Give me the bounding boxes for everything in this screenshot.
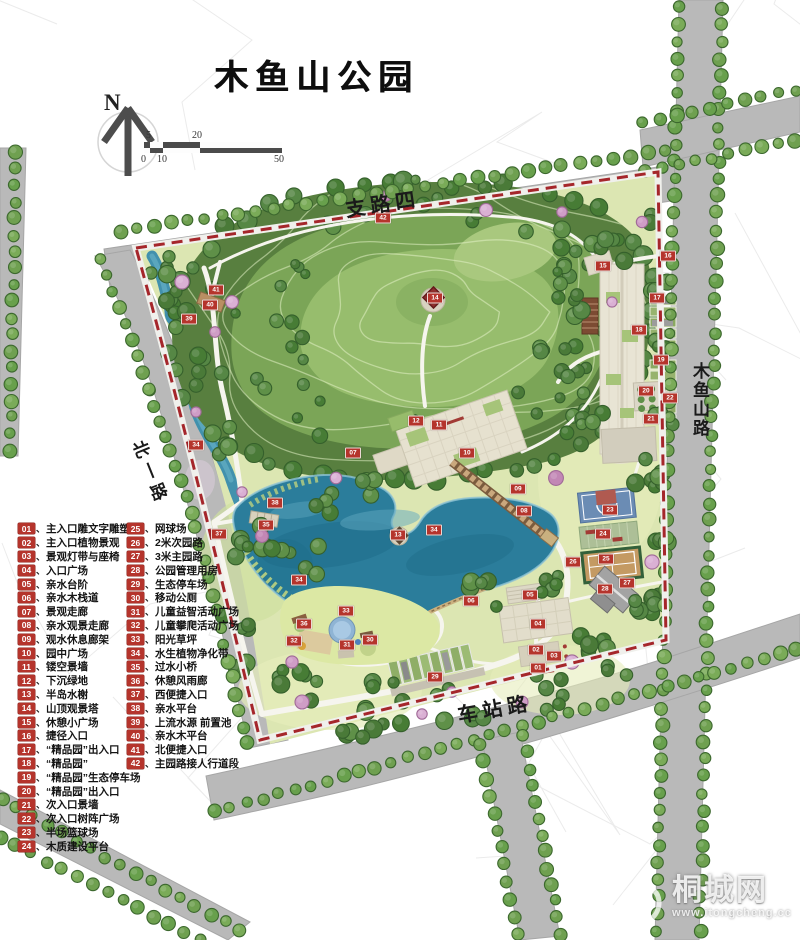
- legend-separator: 、: [145, 729, 154, 742]
- legend-item-number: 27: [127, 551, 144, 562]
- legend-item: 01、主入口雕文字雕塑: [18, 522, 141, 536]
- legend-separator: 、: [36, 633, 45, 646]
- legend-separator: 、: [36, 743, 45, 756]
- legend-item-label: 亲水木平台: [155, 728, 208, 743]
- legend-separator: 、: [145, 550, 154, 563]
- legend-item: 14、山顶观景塔: [18, 701, 141, 715]
- legend-separator: 、: [36, 619, 45, 632]
- legend-column-2: 25、网球场26、2米次园路27、3米主园路28、公园管理用房29、生态停车场3…: [127, 522, 239, 770]
- legend-item-number: 35: [127, 661, 144, 672]
- legend-item-label: 过水小桥: [155, 659, 197, 674]
- legend-item: 05、亲水台阶: [18, 577, 141, 591]
- legend-separator: 、: [145, 688, 154, 701]
- legend-item-label: 休憩风雨廊: [155, 673, 208, 688]
- legend-separator: 、: [36, 578, 45, 591]
- legend-item-number: 22: [18, 813, 35, 824]
- legend-item-label: 景观灯带与座椅: [46, 549, 120, 564]
- legend-separator: 、: [36, 550, 45, 563]
- legend-item-label: “精品园”: [46, 756, 88, 771]
- legend-separator: 、: [145, 578, 154, 591]
- legend-item-label: “精品园”生态停车场: [46, 770, 141, 785]
- legend-item-number: 23: [18, 827, 35, 838]
- legend-item-number: 19: [18, 772, 35, 783]
- legend-item: 26、2米次园路: [127, 536, 239, 550]
- legend-item: 25、网球场: [127, 522, 239, 536]
- legend-item-number: 34: [127, 648, 144, 659]
- legend-item: 29、生态停车场: [127, 577, 239, 591]
- scale-label: 0: [141, 154, 146, 165]
- legend-item-label: “精品园”出入口: [46, 784, 120, 799]
- legend-item: 37、西便捷入口: [127, 688, 239, 702]
- legend-separator: 、: [36, 757, 45, 770]
- legend-item: 08、亲水观景走廊: [18, 619, 141, 633]
- legend-separator: 、: [145, 674, 154, 687]
- legend-item-label: 镂空景墙: [46, 659, 88, 674]
- legend-item-number: 08: [18, 620, 35, 631]
- legend-separator: 、: [36, 605, 45, 618]
- legend-item-label: 下沉绿地: [46, 673, 88, 688]
- legend-item: 12、下沉绿地: [18, 674, 141, 688]
- legend-item-label: 主入口植物景观: [46, 535, 120, 550]
- legend-separator: 、: [145, 536, 154, 549]
- legend-item-number: 15: [18, 717, 35, 728]
- legend-item: 13、半岛水榭: [18, 688, 141, 702]
- legend-separator: 、: [145, 619, 154, 632]
- legend-item-label: 主入口雕文字雕塑: [46, 521, 130, 536]
- legend-item-number: 17: [18, 744, 35, 755]
- legend-item: 19、“精品园”生态停车场: [18, 770, 141, 784]
- legend-item-number: 40: [127, 730, 144, 741]
- legend-item-label: 捷径入口: [46, 728, 88, 743]
- legend-item-number: 16: [18, 730, 35, 741]
- legend-item-number: 41: [127, 744, 144, 755]
- legend-item: 21、次入口景墙: [18, 798, 141, 812]
- legend-item: 07、景观走廊: [18, 605, 141, 619]
- legend-item-label: 观水休息廊架: [46, 632, 109, 647]
- scale-label: 50: [274, 154, 284, 165]
- legend-item-number: 36: [127, 675, 144, 686]
- legend-item: 22、次入口树阵广场: [18, 812, 141, 826]
- legend-item-number: 39: [127, 717, 144, 728]
- legend-item: 27、3米主园路: [127, 550, 239, 564]
- legend-item: 35、过水小桥: [127, 660, 239, 674]
- legend-item: 10、园中广场: [18, 646, 141, 660]
- scale-label: 20: [192, 130, 202, 141]
- legend-separator: 、: [36, 812, 45, 825]
- legend-item: 28、公园管理用房: [127, 563, 239, 577]
- legend-separator: 、: [36, 674, 45, 687]
- legend-item: 04、入口广场: [18, 563, 141, 577]
- legend-item-number: 32: [127, 620, 144, 631]
- legend-item-label: 亲水木栈道: [46, 590, 99, 605]
- legend-item-label: 亲水观景走廊: [46, 618, 109, 633]
- legend-item: 11、镂空景墙: [18, 660, 141, 674]
- legend-item-label: 公园管理用房: [155, 563, 218, 578]
- legend-item-number: 21: [18, 799, 35, 810]
- legend-separator: 、: [145, 605, 154, 618]
- legend-separator: 、: [36, 564, 45, 577]
- legend-separator: 、: [145, 757, 154, 770]
- legend-item-label: 半场篮球场: [46, 825, 99, 840]
- legend-item-number: 06: [18, 592, 35, 603]
- legend-separator: 、: [36, 798, 45, 811]
- legend-item-label: 生态停车场: [155, 577, 208, 592]
- legend-item: 20、“精品园”出入口: [18, 784, 141, 798]
- legend-item-label: 木质建设平台: [46, 839, 109, 854]
- legend-separator: 、: [145, 647, 154, 660]
- legend-item: 16、捷径入口: [18, 729, 141, 743]
- legend-item-label: 儿童攀爬活动广场: [155, 618, 239, 633]
- legend-item-label: 入口广场: [46, 563, 88, 578]
- sports-area: [575, 487, 642, 583]
- legend-item-label: 水生植物净化带: [155, 646, 229, 661]
- legend-separator: 、: [145, 591, 154, 604]
- legend-item-number: 24: [18, 841, 35, 852]
- legend-item: 40、亲水木平台: [127, 729, 239, 743]
- legend-item-number: 03: [18, 551, 35, 562]
- legend-item-number: 09: [18, 634, 35, 645]
- legend-item-label: 移动公厕: [155, 590, 197, 605]
- legend-separator: 、: [36, 840, 45, 853]
- legend-item-number: 04: [18, 565, 35, 576]
- legend-item-label: 上流水源 前置池: [155, 715, 231, 730]
- legend-item-label: 阳光草坪: [155, 632, 197, 647]
- legend-item-label: 景观走廊: [46, 604, 88, 619]
- legend-separator: 、: [36, 688, 45, 701]
- legend-separator: 、: [145, 660, 154, 673]
- legend-item-number: 30: [127, 592, 144, 603]
- legend-item-number: 10: [18, 648, 35, 659]
- legend-item-label: 儿童益智活动广场: [155, 604, 239, 619]
- scale-bar: 5 20 0 10 50: [136, 130, 296, 166]
- legend-separator: 、: [145, 564, 154, 577]
- legend-item: 42、主园路接人行道段: [127, 757, 239, 771]
- legend-item: 39、上流水源 前置池: [127, 715, 239, 729]
- legend-item-label: “精品园”出入口: [46, 742, 120, 757]
- legend-separator: 、: [145, 633, 154, 646]
- legend-item-number: 20: [18, 786, 35, 797]
- legend-item-number: 25: [127, 523, 144, 534]
- legend-item-label: 北便捷入口: [155, 742, 208, 757]
- legend-item: 02、主入口植物景观: [18, 536, 141, 550]
- legend-item: 41、北便捷入口: [127, 743, 239, 757]
- watermark-logo: [612, 876, 670, 928]
- legend-item-number: 38: [127, 703, 144, 714]
- legend-item-number: 33: [127, 634, 144, 645]
- legend-column-1: 01、主入口雕文字雕塑02、主入口植物景观03、景观灯带与座椅04、入口广场05…: [18, 522, 141, 853]
- legend-item: 18、“精品园”: [18, 757, 141, 771]
- legend-separator: 、: [36, 716, 45, 729]
- legend-separator: 、: [36, 826, 45, 839]
- legend-separator: 、: [36, 729, 45, 742]
- legend-item: 03、景观灯带与座椅: [18, 550, 141, 564]
- legend-item-label: 次入口景墙: [46, 797, 99, 812]
- legend-item-label: 半岛水榭: [46, 687, 88, 702]
- legend-separator: 、: [36, 702, 45, 715]
- legend-item-label: 亲水平台: [155, 701, 197, 716]
- legend-separator: 、: [145, 716, 154, 729]
- legend-item-number: 05: [18, 579, 35, 590]
- legend-separator: 、: [36, 660, 45, 673]
- legend-item-number: 42: [127, 758, 144, 769]
- legend-item: 34、水生植物净化带: [127, 646, 239, 660]
- north-label: N: [104, 90, 121, 116]
- legend-item-number: 12: [18, 675, 35, 686]
- legend-separator: 、: [36, 647, 45, 660]
- legend-item: 33、阳光草坪: [127, 632, 239, 646]
- park-master-plan: 木鱼山公园 N 5 20 0 10 50 支路四 北一路 木鱼山路 车站路 01…: [0, 0, 800, 940]
- legend-item: 17、“精品园”出入口: [18, 743, 141, 757]
- plan-title: 木鱼山公园: [214, 50, 419, 99]
- legend-item-label: 次入口树阵广场: [46, 811, 120, 826]
- legend-item: 32、儿童攀爬活动广场: [127, 619, 239, 633]
- legend-item-number: 18: [18, 758, 35, 769]
- legend-separator: 、: [145, 522, 154, 535]
- legend-item-number: 28: [127, 565, 144, 576]
- legend-item-label: 休憩小广场: [46, 715, 99, 730]
- legend-item-label: 主园路接人行道段: [155, 756, 239, 771]
- legend-item: 31、儿童益智活动广场: [127, 605, 239, 619]
- scale-label: 10: [157, 154, 167, 165]
- legend-item: 09、观水休息廊架: [18, 632, 141, 646]
- legend-item: 23、半场篮球场: [18, 826, 141, 840]
- road-label-right: 木鱼山路: [687, 362, 712, 438]
- legend-item: 06、亲水木栈道: [18, 591, 141, 605]
- legend-item-number: 31: [127, 606, 144, 617]
- legend-item-label: 网球场: [155, 521, 187, 536]
- legend-item-label: 2米次园路: [155, 535, 203, 550]
- legend-separator: 、: [36, 536, 45, 549]
- legend-item: 30、移动公厕: [127, 591, 239, 605]
- legend-separator: 、: [36, 591, 45, 604]
- legend-item-label: 园中广场: [46, 646, 88, 661]
- legend-separator: 、: [145, 743, 154, 756]
- legend-item-number: 11: [18, 661, 35, 672]
- scale-label: 5: [146, 130, 151, 141]
- legend-item-number: 02: [18, 537, 35, 548]
- legend-item-number: 26: [127, 537, 144, 548]
- legend-item-number: 37: [127, 689, 144, 700]
- watermark-name: 桐城网: [672, 876, 792, 906]
- legend-item-label: 3米主园路: [155, 549, 203, 564]
- legend-item-number: 13: [18, 689, 35, 700]
- legend-separator: 、: [36, 785, 45, 798]
- legend-separator: 、: [36, 522, 45, 535]
- legend-item-label: 亲水台阶: [46, 577, 88, 592]
- legend-item: 24、木质建设平台: [18, 839, 141, 853]
- legend-item-number: 01: [18, 523, 35, 534]
- legend-item: 36、休憩风雨廊: [127, 674, 239, 688]
- legend-item-number: 14: [18, 703, 35, 714]
- watermark: 桐城网 www.itongcheng.cc: [612, 876, 792, 928]
- legend-item-number: 29: [127, 579, 144, 590]
- legend-item: 38、亲水平台: [127, 701, 239, 715]
- legend-separator: 、: [145, 702, 154, 715]
- legend-item-label: 山顶观景塔: [46, 701, 99, 716]
- watermark-url: www.itongcheng.cc: [672, 907, 792, 919]
- legend-item: 15、休憩小广场: [18, 715, 141, 729]
- legend-separator: 、: [36, 771, 45, 784]
- legend-item-number: 07: [18, 606, 35, 617]
- legend-item-label: 西便捷入口: [155, 687, 208, 702]
